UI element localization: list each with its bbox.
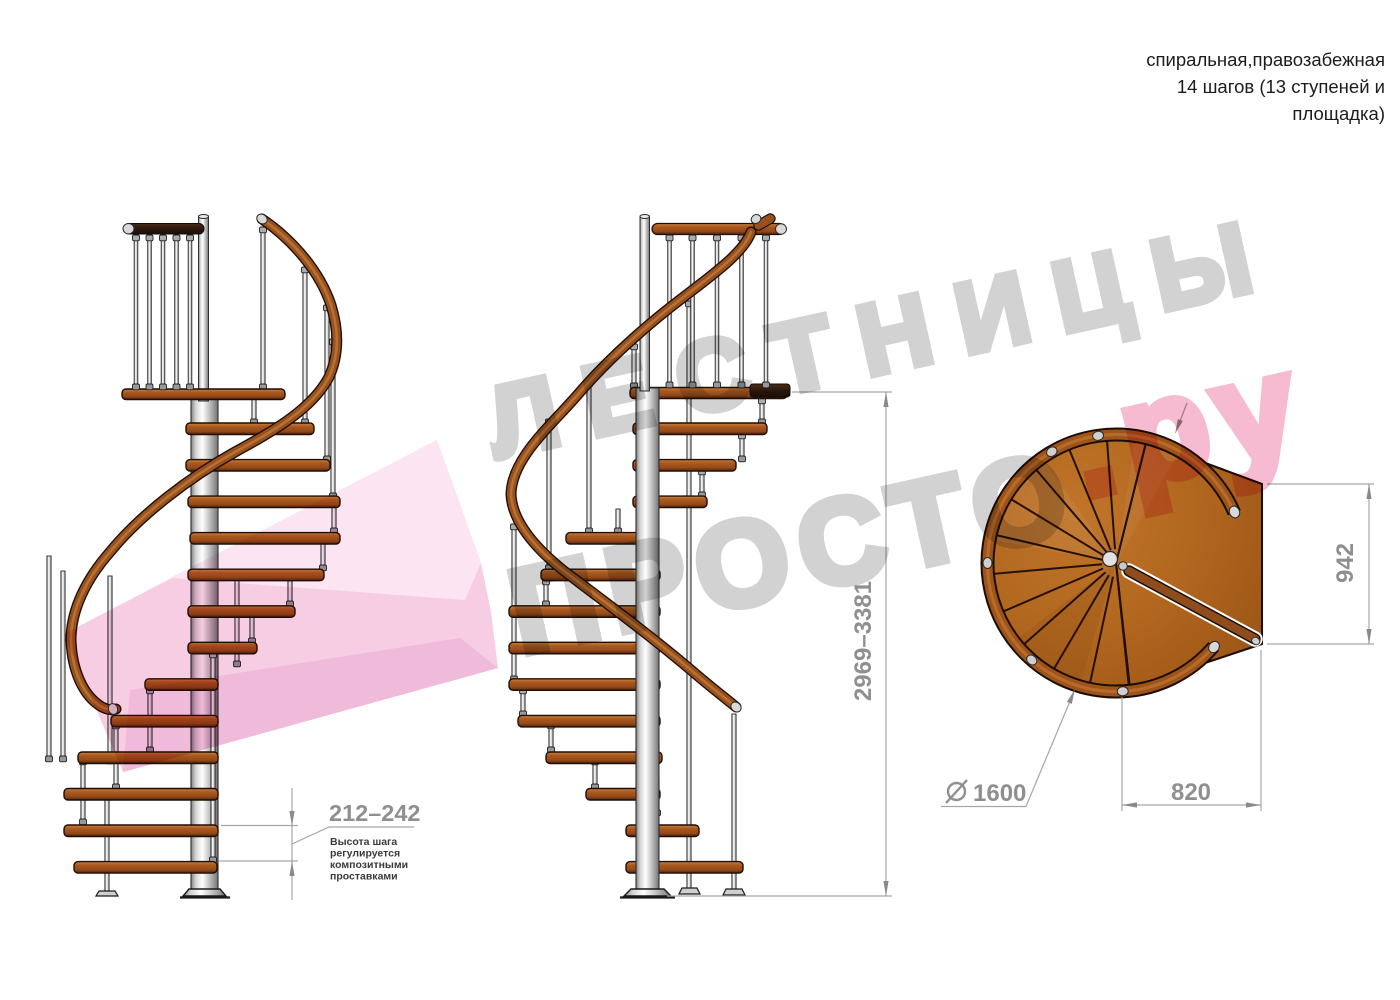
svg-text:регулируется: регулируется — [330, 848, 400, 860]
svg-text:Высота шага: Высота шага — [330, 836, 397, 848]
svg-text:1600: 1600 — [973, 780, 1026, 807]
svg-text:212–242: 212–242 — [329, 800, 421, 826]
svg-text:площадка): площадка) — [1292, 103, 1385, 124]
svg-text:942: 942 — [1332, 543, 1359, 583]
svg-text:спиральная,правозабежная: спиральная,правозабежная — [1146, 49, 1385, 70]
svg-text:820: 820 — [1171, 779, 1211, 806]
svg-text:композитными: композитными — [330, 859, 408, 871]
svg-text:проставками: проставками — [330, 871, 398, 883]
svg-text:14 шагов (13 ступеней и: 14 шагов (13 ступеней и — [1177, 76, 1385, 97]
